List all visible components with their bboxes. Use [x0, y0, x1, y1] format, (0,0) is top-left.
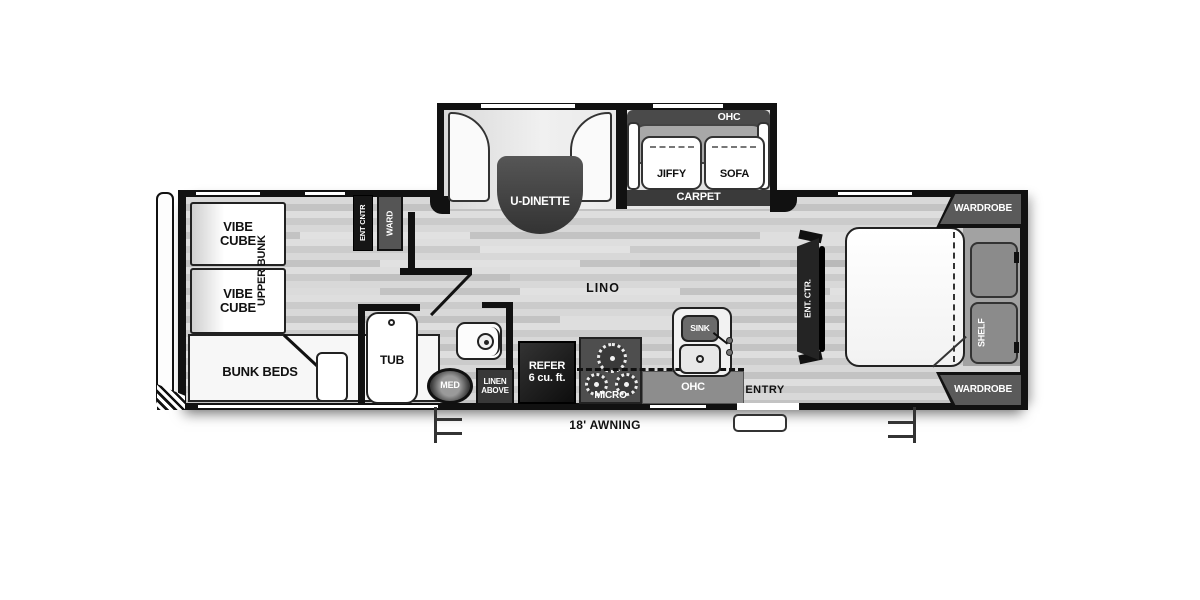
stove-burner-dot: [624, 382, 629, 387]
floor-plank: [640, 260, 760, 267]
toilet-flush-dot: [484, 340, 489, 345]
sink-knob-icon: [726, 337, 733, 344]
floorplan-canvas: VIBE CUBE VIBE CUBE UPPER BUNK BUNK BEDS…: [0, 0, 1200, 600]
stabilizer-jack-icon: [888, 421, 913, 424]
bed: [845, 227, 965, 367]
ent-ctr-label: ENT. CTR.: [797, 244, 819, 354]
wall-left: [178, 190, 186, 410]
stabilizer-jack-icon: [913, 407, 916, 443]
shelf-tab: [1014, 342, 1019, 353]
jiffy-label: JIFFY: [641, 166, 702, 184]
window: [198, 405, 438, 408]
sofa-stitch-line: [650, 146, 694, 148]
bunk-beds-label: BUNK BEDS: [200, 362, 320, 382]
floor-plank: [480, 246, 630, 253]
shelf-tab: [1014, 252, 1019, 263]
slideout-divider-wall: [616, 103, 627, 209]
stabilizer-jack-icon: [434, 407, 437, 443]
ward-label: WARD: [377, 195, 403, 251]
ohc-sofa-label: OHC: [706, 110, 752, 126]
micro-label: MICRO: [579, 388, 642, 404]
window: [305, 192, 345, 195]
sink-drain-icon: [696, 355, 704, 363]
sofa-armrest: [627, 122, 640, 190]
entry-step: [733, 414, 787, 432]
sink-knob-icon: [726, 349, 733, 356]
floor-plank: [350, 274, 510, 281]
lino-label: LINO: [570, 280, 636, 298]
bunk-dresser: [316, 352, 348, 402]
stabilizer-jack-icon: [436, 418, 462, 421]
stove-burner-dot: [610, 356, 615, 361]
sofa-stitch-line: [712, 146, 756, 148]
stove-burner-dot: [594, 382, 599, 387]
stabilizer-jack-icon: [436, 432, 462, 435]
window: [838, 192, 912, 195]
tub-drain-icon: [388, 319, 395, 326]
wardrobe-bottom-label: WARDROBE: [944, 375, 1022, 405]
window: [650, 405, 706, 408]
ohc-kitchen-label: OHC: [642, 377, 744, 399]
bathroom-wall-right: [506, 302, 513, 368]
wardrobe-top-label: WARDROBE: [944, 194, 1022, 224]
tub-label: TUB: [366, 350, 418, 370]
wall-stub-ward: [408, 212, 415, 270]
bathroom-wall-top: [400, 268, 472, 275]
sink-label: SINK: [681, 315, 719, 342]
bathroom-wall-left: [358, 304, 365, 404]
shelf-label: SHELF: [974, 305, 990, 361]
linen-above-label: LINEN ABOVE: [476, 368, 514, 405]
u-dinette-label: U-DINETTE: [497, 192, 583, 212]
front-cap: [156, 192, 174, 407]
tv-icon: [819, 246, 825, 352]
window: [653, 104, 723, 108]
sofa-label: SOFA: [704, 166, 765, 184]
vibe-cube-label: VIBE CUBE: [190, 268, 286, 334]
entry-door-opening: [737, 403, 799, 410]
window: [196, 192, 260, 195]
ent-cntr-label: ENT CNTR: [353, 195, 373, 251]
bed-sheet-dashed-line: [953, 232, 955, 362]
stabilizer-jack-icon: [888, 435, 913, 438]
window: [481, 104, 575, 108]
shelf-box: [970, 242, 1018, 298]
med-label: MED: [427, 368, 473, 404]
awning-label: 18' AWNING: [540, 416, 670, 434]
upper-bunk-label: UPPER BUNK: [255, 225, 271, 317]
bathroom-wall-tub-top: [358, 304, 420, 311]
refer-label: REFER 6 cu. ft.: [518, 341, 576, 404]
carpet-label: CARPET: [627, 190, 770, 206]
vibe-cube-label: VIBE CUBE: [190, 202, 286, 266]
entry-label: ENTRY: [733, 382, 797, 400]
